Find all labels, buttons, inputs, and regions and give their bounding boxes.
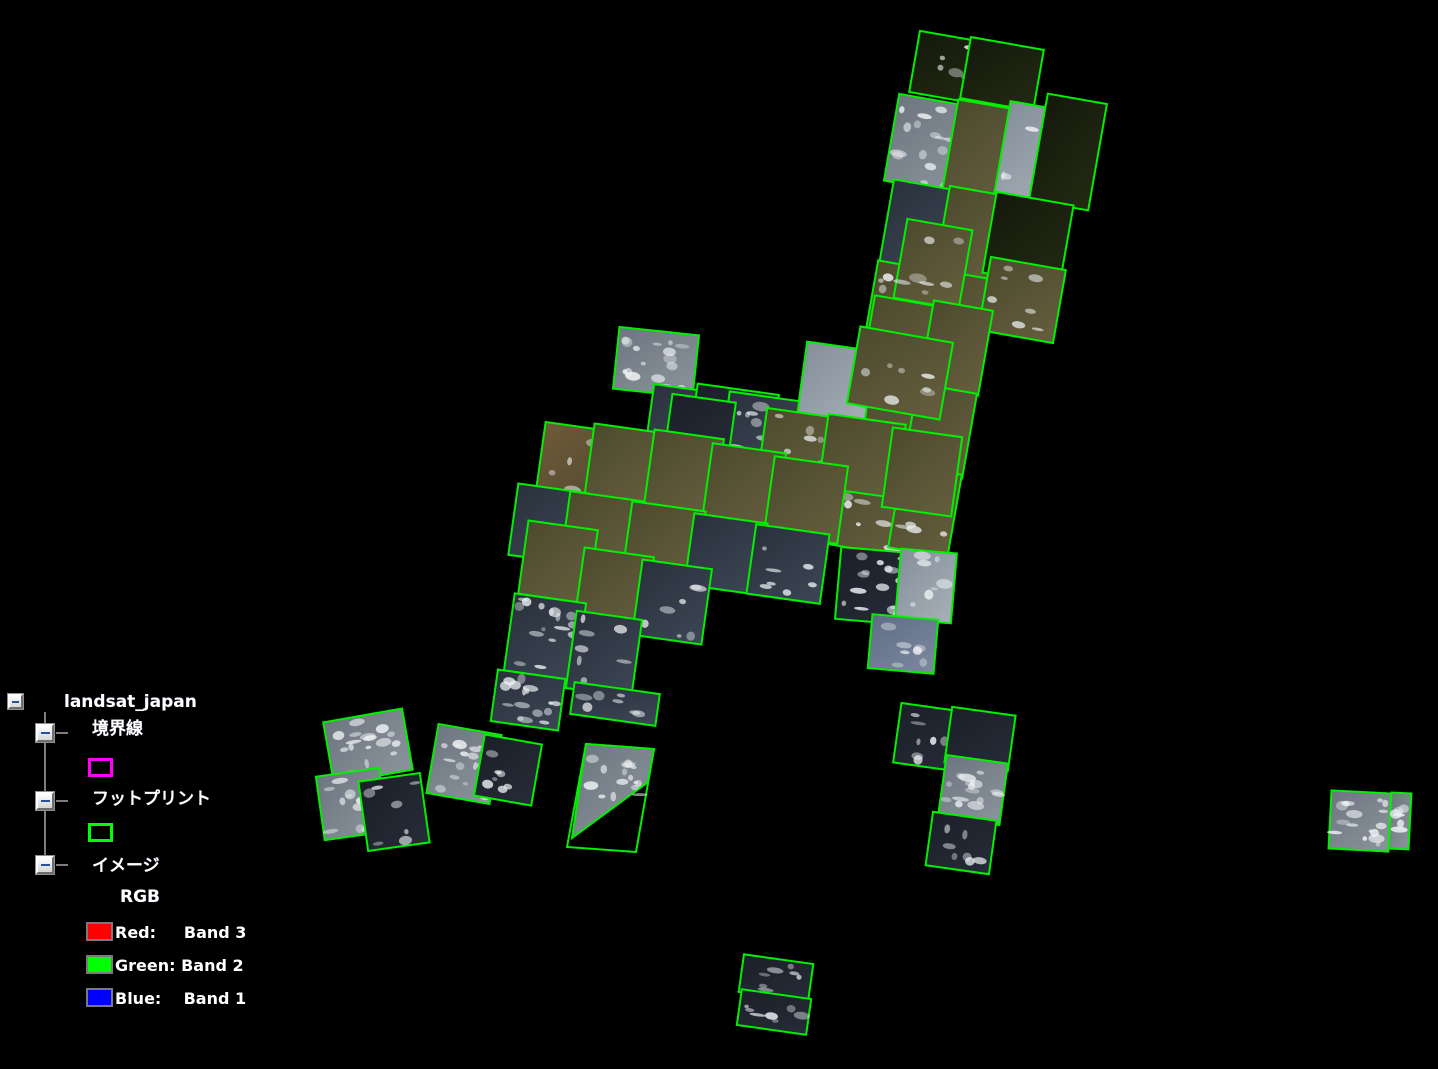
blue-band-swatch bbox=[86, 988, 113, 1007]
tree-branch-line bbox=[56, 800, 68, 802]
tree-collapse-root-icon[interactable] bbox=[8, 694, 23, 709]
scene-footprint[interactable] bbox=[632, 559, 712, 644]
tree-collapse-boundary-icon[interactable] bbox=[36, 724, 54, 742]
cloud-patch bbox=[635, 780, 642, 787]
minus-icon bbox=[41, 864, 50, 866]
scene-footprint[interactable] bbox=[1326, 790, 1391, 851]
layer-footprint-label[interactable]: フットプリント bbox=[92, 789, 211, 809]
scene-footprint[interactable] bbox=[847, 326, 953, 419]
blue-band-label: Blue: Band 1 bbox=[115, 989, 246, 1008]
minus-icon bbox=[41, 800, 50, 802]
tree-collapse-footprint-icon[interactable] bbox=[36, 792, 54, 810]
cloud-patch bbox=[628, 775, 633, 781]
rgb-label: RGB bbox=[120, 887, 160, 907]
scene-footprint[interactable] bbox=[868, 614, 938, 674]
scene-footprint-rect[interactable] bbox=[570, 682, 660, 726]
scene-footprint[interactable] bbox=[746, 524, 829, 604]
scene-footprint-rect[interactable] bbox=[960, 37, 1044, 111]
scene-footprint[interactable] bbox=[570, 682, 660, 726]
tree-branch-line bbox=[56, 732, 68, 734]
cloud-patch bbox=[586, 755, 599, 763]
cloud-patch bbox=[601, 765, 608, 774]
tree-collapse-image-icon[interactable] bbox=[36, 856, 54, 874]
scene-footprint[interactable] bbox=[895, 549, 957, 624]
red-band-label: Red: Band 3 bbox=[115, 923, 246, 942]
scene-footprint-rect[interactable] bbox=[358, 773, 429, 851]
green-band-swatch bbox=[86, 955, 113, 974]
scene-footprint[interactable] bbox=[882, 428, 962, 517]
cloud-patch bbox=[611, 792, 617, 802]
map-viewport[interactable] bbox=[0, 0, 1438, 1069]
scene-footprint[interactable] bbox=[358, 773, 429, 851]
footprint-swatch bbox=[88, 823, 113, 842]
scene-footprint-rect[interactable] bbox=[882, 428, 962, 517]
cloud-patch bbox=[584, 781, 599, 790]
map-stage: landsat_japan 境界線 フットプリント イメージ RGB Red: … bbox=[0, 0, 1438, 1069]
cloud-patch bbox=[622, 768, 627, 775]
cloud-patch bbox=[616, 779, 628, 785]
scene-footprint-rect[interactable] bbox=[926, 812, 997, 874]
layer-boundary-label[interactable]: 境界線 bbox=[92, 719, 143, 739]
layer-root-label[interactable]: landsat_japan bbox=[64, 692, 197, 712]
cloud-patch bbox=[598, 794, 605, 798]
scene-footprint[interactable] bbox=[1388, 792, 1411, 849]
minus-icon bbox=[41, 732, 50, 734]
red-band-swatch bbox=[86, 922, 113, 941]
scene-footprint[interactable] bbox=[978, 257, 1066, 343]
scene-footprint[interactable] bbox=[926, 812, 997, 874]
scene-footprint[interactable] bbox=[491, 670, 566, 731]
scene-footprint-rect[interactable] bbox=[474, 734, 542, 805]
minus-icon bbox=[12, 701, 19, 703]
cloud-patch bbox=[632, 793, 648, 796]
scene-footprint[interactable] bbox=[960, 37, 1044, 111]
scene-footprint[interactable] bbox=[474, 734, 542, 805]
tree-branch-line bbox=[56, 864, 68, 866]
green-band-label: Green: Band 2 bbox=[115, 956, 244, 975]
boundary-line-swatch bbox=[88, 758, 113, 777]
scene-footprint-rect[interactable] bbox=[894, 219, 973, 309]
layer-image-label[interactable]: イメージ bbox=[92, 856, 160, 876]
cloud-patch bbox=[631, 766, 637, 769]
scene-footprint-rect[interactable] bbox=[632, 559, 712, 644]
